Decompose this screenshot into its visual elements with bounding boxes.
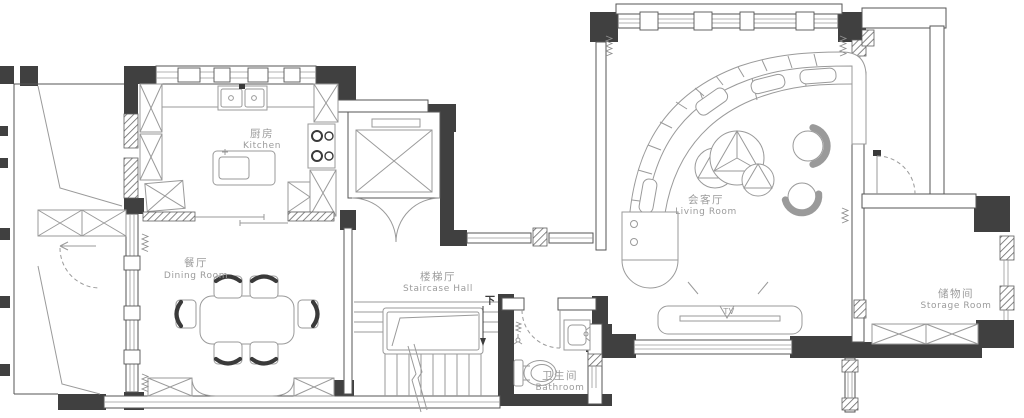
room-label-living-en: Living Room bbox=[675, 207, 737, 217]
window-mullion bbox=[796, 12, 814, 30]
window-mullion bbox=[248, 68, 268, 82]
radiator bbox=[142, 374, 148, 392]
stove bbox=[308, 124, 335, 168]
dining-room bbox=[142, 234, 334, 396]
tv-label: TV bbox=[722, 307, 734, 316]
sofa-pillow bbox=[800, 68, 837, 84]
window-mullion bbox=[640, 12, 658, 30]
dining-chair bbox=[250, 276, 278, 298]
window-mullion bbox=[214, 68, 230, 82]
room-label-dining-zh: 餐厅 bbox=[184, 256, 208, 269]
dining-chair bbox=[214, 342, 242, 364]
radiator bbox=[516, 322, 521, 332]
kitchen-island bbox=[213, 149, 275, 185]
room-label-living-zh: 会客厅 bbox=[688, 193, 724, 206]
living-room: TV bbox=[606, 36, 866, 334]
room-label-staircase-en: Staircase Hall bbox=[403, 284, 473, 294]
washbasin bbox=[564, 320, 590, 350]
elevator bbox=[348, 112, 440, 242]
storage-cabinets bbox=[872, 324, 978, 344]
shower-valve bbox=[514, 334, 522, 344]
room-label-storage-en: Storage Room bbox=[921, 301, 992, 311]
arched-opening bbox=[352, 198, 440, 242]
staircase: 下 bbox=[354, 295, 498, 412]
window-mullion bbox=[178, 68, 200, 82]
tv-stand: TV bbox=[658, 282, 802, 334]
corridor-door bbox=[873, 150, 915, 194]
room-label-kitchen-zh: 厨房 bbox=[250, 127, 274, 140]
window-mullion bbox=[124, 350, 140, 364]
room-label-bathroom-en: Bathroom bbox=[535, 383, 584, 393]
stairs-down-label: 下 bbox=[485, 295, 495, 307]
terrace bbox=[38, 86, 126, 394]
terrace-cabinet bbox=[38, 210, 126, 236]
stair-landing bbox=[383, 308, 483, 354]
window-mullion bbox=[694, 12, 712, 30]
bathroom-door bbox=[522, 310, 560, 348]
floor-plan: 下 bbox=[0, 0, 1024, 418]
floor-plan-drawing: 下 bbox=[0, 0, 1024, 418]
dining-chair bbox=[298, 300, 318, 328]
dining-cabinets bbox=[148, 378, 334, 396]
kitchen-sink bbox=[218, 84, 267, 110]
room-label-bathroom-zh: 卫生间 bbox=[542, 369, 578, 382]
radiator bbox=[842, 208, 848, 223]
window-mullion bbox=[124, 306, 140, 320]
room-label-kitchen-en: Kitchen bbox=[243, 141, 281, 151]
window-mullion bbox=[124, 256, 140, 270]
coffee-table bbox=[695, 131, 774, 196]
dining-table bbox=[200, 296, 294, 344]
armchair bbox=[793, 128, 827, 165]
dining-chair bbox=[250, 342, 278, 364]
room-label-storage-zh: 储物间 bbox=[938, 287, 974, 300]
kitchen-sliding-door bbox=[143, 212, 334, 226]
room-label-dining-en: Dining Room bbox=[164, 271, 228, 281]
room-label-staircase-zh: 楼梯厅 bbox=[420, 270, 456, 283]
dining-chair bbox=[176, 300, 196, 328]
armchair bbox=[785, 183, 818, 213]
tv-view-lines bbox=[688, 282, 768, 294]
radiator bbox=[142, 234, 148, 252]
window-mullion bbox=[284, 68, 300, 82]
kitchen bbox=[140, 84, 338, 226]
storage-room bbox=[872, 150, 978, 344]
window-mullion bbox=[740, 12, 754, 30]
terrace-door bbox=[60, 242, 100, 288]
